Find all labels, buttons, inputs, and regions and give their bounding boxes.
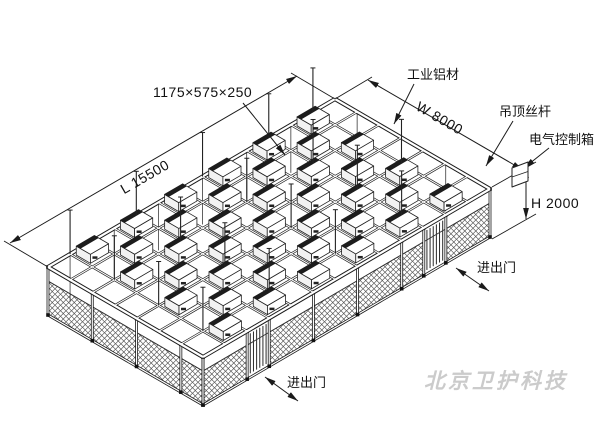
drawing-canvas: 1175×575×250 L 15500 W 8000 H 2000 工业铝材 … [0, 0, 600, 425]
dimension-module-size: 1175×575×250 [153, 85, 252, 100]
callout-door-front: 进出门 [287, 376, 326, 390]
callout-aluminum-profile: 工业铝材 [407, 68, 459, 82]
isometric-structure-drawing [0, 0, 600, 425]
callout-electric-control-box: 电气控制箱 [529, 133, 594, 147]
dimension-height: H 2000 [531, 196, 579, 211]
callout-ceiling-rod: 吊顶丝杆 [499, 105, 551, 119]
callout-door-right: 进出门 [477, 261, 516, 275]
watermark-company: 北京卫护科技 [424, 370, 568, 393]
